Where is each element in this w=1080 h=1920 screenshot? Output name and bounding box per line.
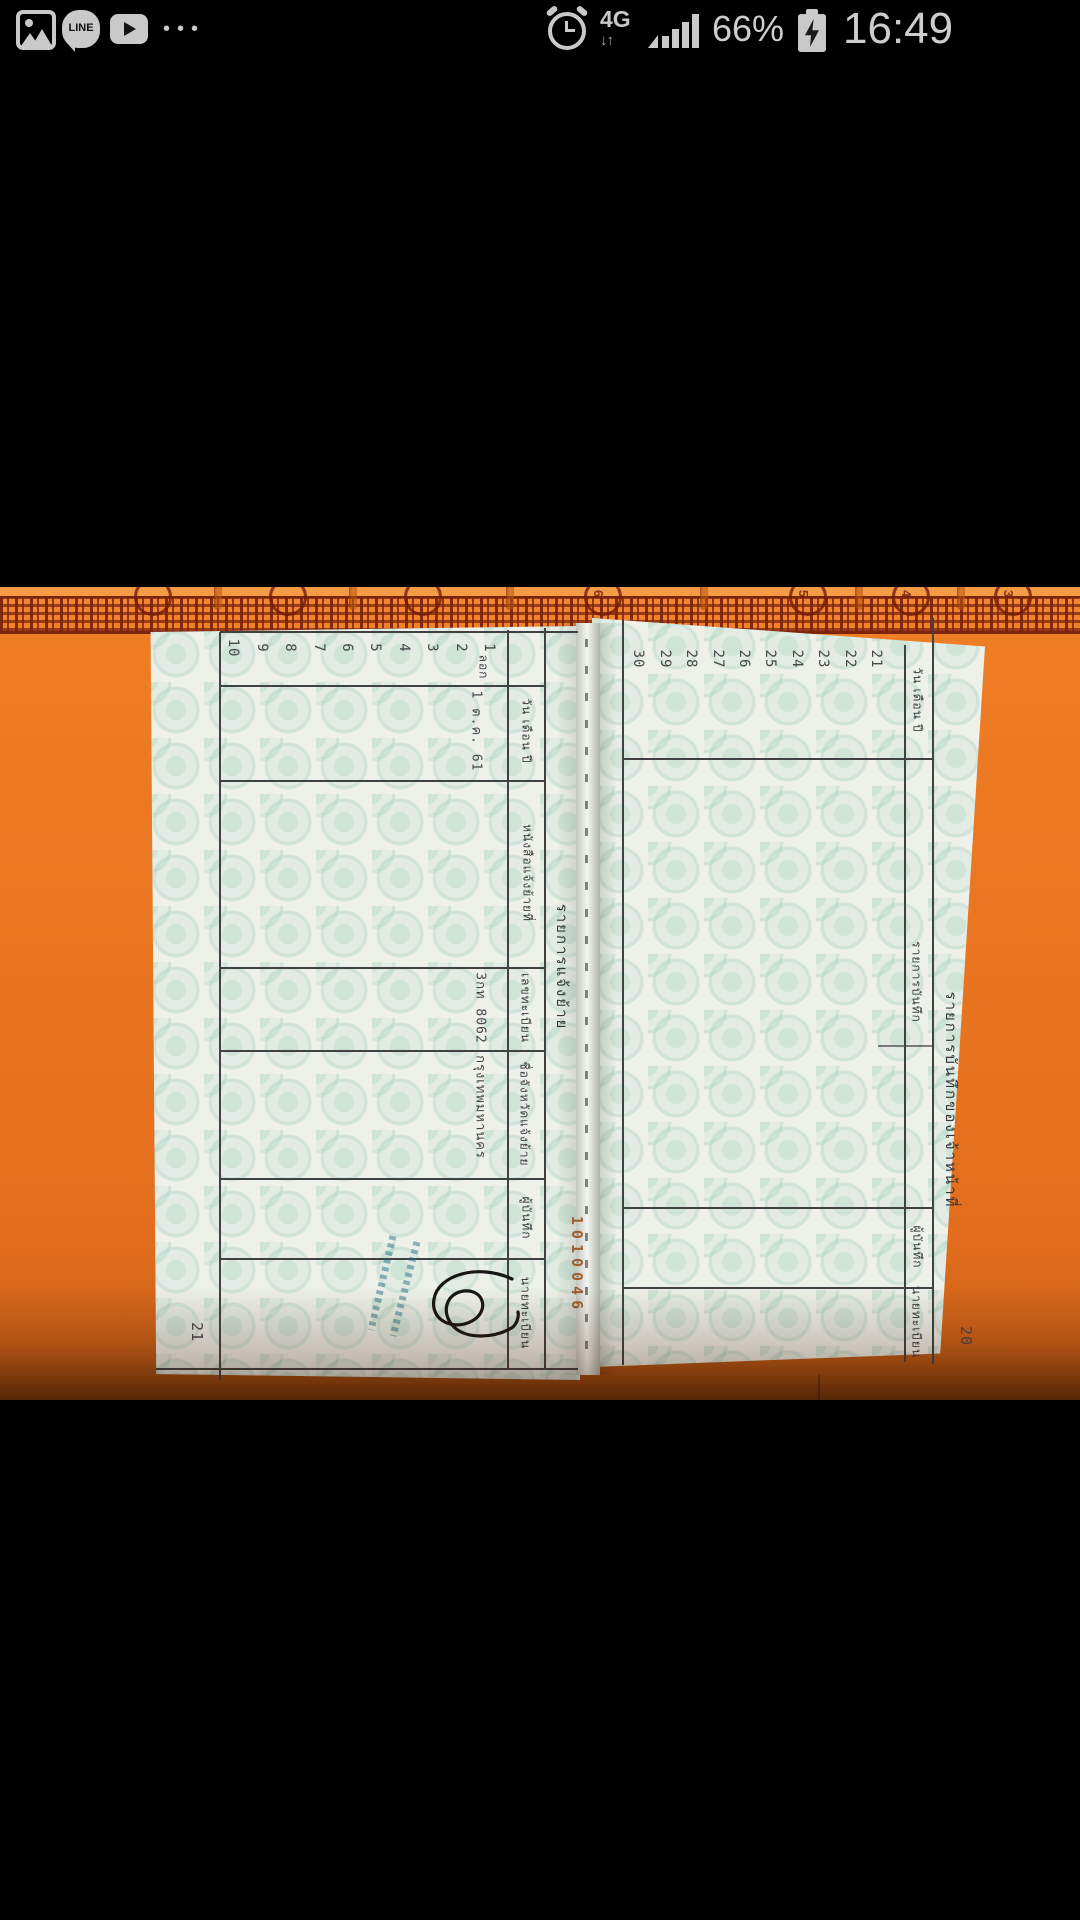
youtube-app-icon	[110, 14, 148, 44]
col-header-recorder: ผู้บันทึก	[517, 1196, 536, 1239]
row1-date: 1 ต.ค. 61	[467, 691, 488, 772]
more-notifications-icon: •••	[163, 18, 205, 41]
col-header-registration-no: เลขทะเบียน	[516, 973, 535, 1043]
registrar-name-stamp	[363, 1232, 449, 1340]
row-number: 6	[339, 643, 355, 652]
col-header-registrar-r: นายทะเบียน	[907, 1286, 926, 1358]
cover-slot	[855, 587, 863, 610]
cover-slot	[506, 587, 514, 610]
cover-slot	[957, 587, 965, 610]
row-number: 8	[282, 643, 298, 652]
row1-note: ลอก	[474, 655, 493, 680]
data-arrows-icon: ↓↑	[600, 32, 613, 49]
col-header-record: รายการบันทึก	[907, 941, 926, 1023]
line-label: LINE	[62, 22, 100, 34]
cover-slot	[214, 587, 222, 610]
row-number: 5	[367, 643, 383, 652]
row-number: 2	[453, 643, 469, 652]
status-clock: 16:49	[843, 4, 953, 54]
row1-province: กรุงเทพมหานคร	[471, 1055, 492, 1159]
col-header-recorder-r: ผู้บันทึก	[908, 1225, 927, 1268]
row-number: 25	[762, 650, 778, 669]
row-number: 28	[683, 650, 699, 669]
left-page-number: 21	[188, 1322, 206, 1342]
phone-screen: LINE ••• 4G ↓↑ 66% 16:49 6 5 4	[0, 0, 1080, 1920]
row-number: 7	[311, 643, 327, 652]
col-header-transfer-letter: หนังสือแจ้งย้ายที่	[518, 824, 537, 922]
photos-app-icon	[16, 10, 56, 50]
fold-serial-stamp: 1010046	[568, 1216, 586, 1314]
cover-crease	[818, 1375, 820, 1400]
row-number: 22	[842, 650, 858, 669]
row-number: 29	[657, 650, 673, 669]
status-bar[interactable]: LINE ••• 4G ↓↑ 66% 16:49	[0, 0, 1080, 60]
col-header-province: ชื่อจังหวัดแจ้งย้าย	[515, 1061, 534, 1166]
battery-charging-icon	[798, 14, 826, 52]
left-page-title: รายการแจ้งย้าย	[550, 904, 574, 1031]
row-number: 30	[630, 650, 646, 669]
photo-viewer-image[interactable]: 6 5 4 3 1234567	[0, 587, 1080, 1400]
row-number: 21	[868, 650, 884, 669]
row-number: 9	[254, 643, 270, 652]
line-app-icon: LINE	[62, 10, 100, 48]
row-number: 26	[736, 650, 752, 669]
row-number: 1	[481, 643, 497, 652]
col-header-date: วัน เดือน ปี	[517, 698, 536, 764]
battery-percent: 66%	[712, 8, 784, 50]
row-number: 24	[789, 650, 805, 669]
row-number: 10	[225, 639, 241, 658]
row1-registration-no: 3กท 8062	[471, 972, 492, 1043]
row-number: 3	[424, 643, 440, 652]
signal-bars-icon	[648, 14, 704, 48]
row-number: 27	[710, 650, 726, 669]
row-number: 4	[396, 643, 412, 652]
cover-slot	[700, 587, 708, 610]
alarm-icon	[548, 12, 586, 50]
right-page-title: รายการบันทึกของเจ้าหน้าที่	[939, 992, 963, 1209]
play-icon	[124, 22, 136, 36]
col-header-date-r: วัน เดือน ปี	[908, 667, 927, 733]
right-page-number: 20	[957, 1326, 975, 1346]
network-4g-label: 4G	[600, 6, 631, 33]
row-number: 23	[815, 650, 831, 669]
cover-slot	[349, 587, 357, 610]
